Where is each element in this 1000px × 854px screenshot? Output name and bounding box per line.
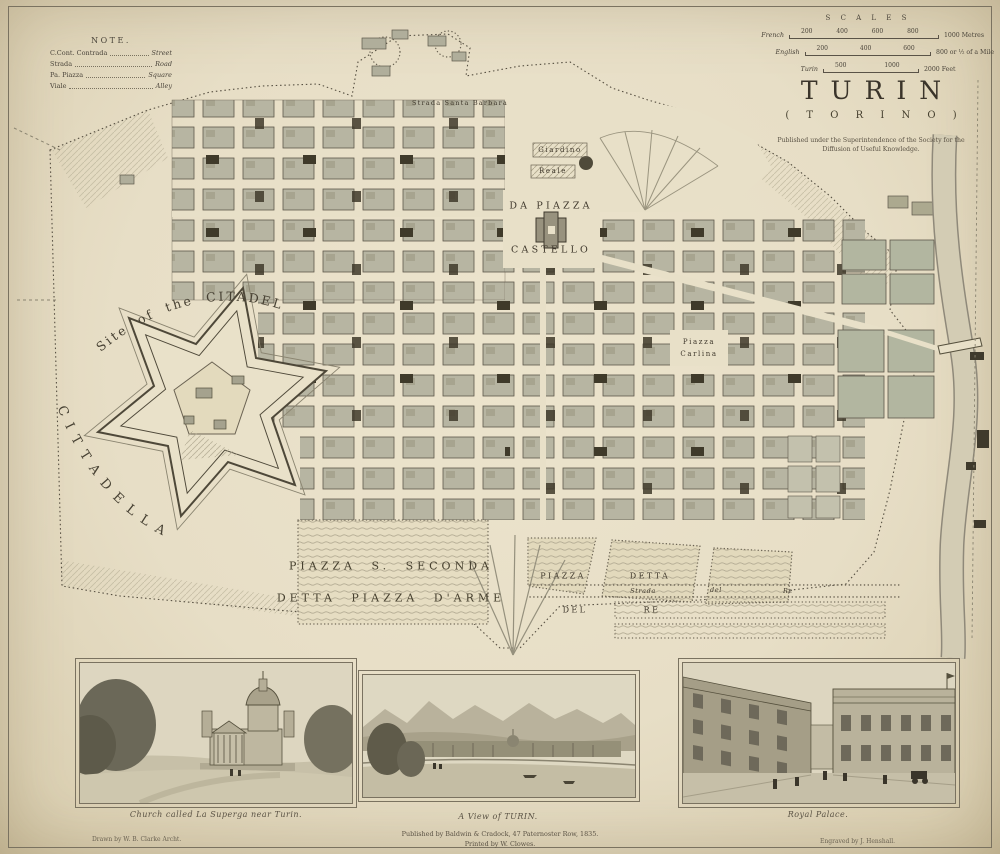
dotted-leader — [75, 66, 152, 67]
superga-engraving — [79, 662, 353, 804]
street-label-santa-barbara: Strada Santa Barbara — [412, 99, 508, 107]
label-piazza-carlina-2: Carlina — [680, 350, 717, 358]
vignette-superga — [75, 658, 357, 808]
dotted-leader — [110, 55, 148, 56]
scale-row-english: English 200 400 600 800 or ½ of a Mile — [758, 46, 994, 56]
dotted-leader — [69, 88, 152, 89]
label-piazza-detta-4: RE — [644, 606, 661, 615]
note-def: Square — [148, 71, 172, 79]
label-piazza-detta-1: PIAZZA — [540, 572, 586, 581]
dotted-leader — [86, 77, 145, 78]
label-piazza-detta-2: DETTA — [630, 572, 670, 581]
piazza-carlina — [670, 330, 728, 366]
scale-end-label: 2000 Feet — [924, 66, 955, 73]
scale-bar: 500 1000 — [823, 63, 919, 73]
scale-row-turin: Turin 500 1000 2000 Feet — [776, 63, 994, 73]
label-strada-del-re-3: Re — [783, 587, 793, 595]
caption-view-of-turin: A View of TURIN. — [458, 812, 537, 821]
map-subtitle: ( T O R I N O ) — [758, 110, 984, 121]
royal-palace-engraving — [682, 662, 956, 804]
imprint-line: Published under the Superintendence of t… — [758, 136, 984, 145]
caption-royal-palace: Royal Palace. — [788, 810, 849, 819]
caption-superga: Church called La Superga near Turin. — [130, 810, 302, 819]
imprint-line: Diffusion of Useful Knowledge. — [758, 145, 984, 154]
scale-ticks: 500 1000 — [835, 62, 900, 69]
note-def: Road — [155, 60, 172, 68]
society-imprint: Published under the Superintendence of t… — [758, 136, 984, 155]
note-term: Pa. Piazza — [50, 71, 83, 79]
note-term: Strada — [50, 60, 72, 68]
label-piazza-carlina-1: Piazza — [683, 338, 715, 346]
note-legend: NOTE. C.Cont. ContradaStreet StradaRoad … — [50, 36, 172, 90]
scale-end-label: 1000 Metres — [944, 32, 984, 39]
note-def: Street — [152, 49, 172, 57]
label-strada-del-re-1: Strada — [630, 587, 656, 595]
map-title: TURIN — [758, 76, 984, 105]
scale-bar: 200 400 600 — [805, 46, 932, 56]
label-giardino: Giardino — [538, 146, 582, 154]
note-row: VialeAlley — [50, 82, 172, 90]
label-strada-del-re-2: del — [710, 586, 722, 594]
vignette-view-of-turin — [358, 670, 640, 802]
note-row: C.Cont. ContradaStreet — [50, 49, 172, 57]
scales-heading: S C A L E S — [742, 14, 994, 22]
publisher-line: Published by Baldwin & Cradock, 47 Pater… — [402, 830, 599, 838]
label-castello: CASTELLO — [511, 245, 591, 256]
label-piazza-detta-3: DEL — [563, 606, 588, 615]
scale-bars: S C A L E S French 200 400 600 800 1000 … — [742, 14, 994, 73]
printer-line: Printed by W. Clowes. — [465, 840, 536, 848]
scale-ticks: 200 400 600 800 — [801, 28, 919, 35]
note-row: Pa. PiazzaSquare — [50, 71, 172, 79]
scale-name: English — [758, 49, 800, 56]
note-heading: NOTE. — [50, 36, 172, 45]
turin-view-engraving — [362, 674, 636, 798]
label-piazza-s-seconda: PIAZZA S. SECONDA — [289, 560, 493, 573]
scale-bar: 200 400 600 800 — [789, 29, 939, 39]
scale-row-french: French 200 400 600 800 1000 Metres — [742, 29, 994, 39]
note-term: Viale — [50, 82, 66, 90]
drawn-by-credit: Drawn by W. B. Clarke Archt. — [92, 836, 181, 843]
title-block: TURIN ( T O R I N O ) Published under th… — [758, 76, 984, 155]
engraved-by-credit: Engraved by J. Henshall. — [820, 838, 895, 845]
note-term: C.Cont. Contrada — [50, 49, 107, 57]
scale-end-label: 800 or ½ of a Mile — [936, 49, 994, 56]
note-def: Alley — [156, 82, 172, 90]
label-reale: Reale — [539, 167, 567, 175]
scale-name: Turin — [776, 66, 818, 73]
label-detta-piazza-darme: DETTA PIAZZA D'ARME — [277, 592, 505, 605]
scale-name: French — [742, 32, 784, 39]
label-da-piazza: DA PIAZZA — [509, 201, 592, 212]
map-sheet: Site of the CITADEL CITTADELLA Strada Sa… — [0, 0, 1000, 854]
scale-ticks: 200 400 600 — [817, 45, 915, 52]
vignette-royal-palace — [678, 658, 960, 808]
note-row: StradaRoad — [50, 60, 172, 68]
